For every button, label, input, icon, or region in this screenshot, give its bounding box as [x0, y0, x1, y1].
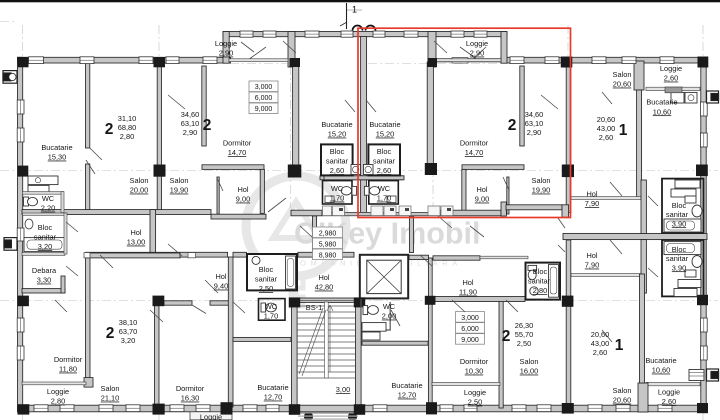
svg-text:15,20: 15,20 [376, 130, 395, 139]
svg-text:68,80: 68,80 [118, 123, 137, 132]
svg-text:Bucatarie: Bucatarie [369, 120, 400, 129]
svg-text:38,10: 38,10 [119, 318, 138, 327]
svg-text:2,980: 2,980 [319, 230, 337, 237]
svg-text:Loggie: Loggie [200, 412, 222, 420]
svg-text:11,90: 11,90 [459, 288, 477, 297]
svg-text:Loggie: Loggie [464, 388, 486, 397]
svg-text:34,60: 34,60 [525, 110, 544, 119]
svg-text:42,80: 42,80 [315, 283, 334, 292]
svg-text:5,980: 5,980 [319, 241, 337, 248]
svg-text:Dormitor: Dormitor [460, 139, 489, 148]
svg-text:Bucatarie: Bucatarie [41, 143, 72, 152]
svg-text:sanitar: sanitar [255, 275, 278, 284]
svg-text:sanitar: sanitar [34, 233, 57, 242]
svg-text:Hol: Hol [215, 272, 226, 281]
svg-text:sanitar: sanitar [666, 254, 689, 263]
svg-text:2,60: 2,60 [599, 133, 613, 142]
svg-text:2,80: 2,80 [120, 132, 134, 141]
svg-text:20,60: 20,60 [613, 80, 632, 89]
svg-text:Salon: Salon [532, 176, 551, 185]
svg-text:3,20: 3,20 [38, 242, 52, 251]
svg-text:6,000: 6,000 [255, 95, 273, 102]
svg-text:Dormitor: Dormitor [460, 357, 489, 366]
svg-text:3,30: 3,30 [37, 276, 51, 285]
svg-text:sanitar: sanitar [528, 277, 551, 286]
svg-text:Hol: Hol [586, 251, 597, 260]
svg-text:Bloc: Bloc [672, 201, 687, 210]
svg-text:Dormitor: Dormitor [176, 384, 205, 393]
svg-text:2,90: 2,90 [527, 128, 541, 137]
svg-text:7,90: 7,90 [585, 199, 599, 208]
svg-text:Bloc: Bloc [38, 223, 53, 232]
svg-text:Salon: Salon [613, 386, 632, 395]
svg-text:10,60: 10,60 [653, 107, 672, 116]
svg-text:Hol: Hol [586, 190, 597, 199]
svg-text:Hol: Hol [476, 185, 487, 194]
svg-text:2,20: 2,20 [41, 204, 55, 213]
svg-text:Hol: Hol [318, 273, 329, 282]
svg-text:Loggie: Loggie [660, 64, 682, 73]
svg-text:15,30: 15,30 [48, 153, 67, 162]
svg-text:13,00: 13,00 [127, 238, 146, 247]
svg-text:2,90: 2,90 [183, 128, 197, 137]
svg-text:Bloc: Bloc [330, 147, 345, 156]
svg-text:63,10: 63,10 [181, 119, 200, 128]
svg-text:14,70: 14,70 [465, 148, 484, 157]
svg-text:10,30: 10,30 [465, 367, 484, 376]
svg-text:2,50: 2,50 [259, 284, 273, 293]
svg-text:Bloc: Bloc [672, 245, 687, 254]
svg-text:63,10: 63,10 [525, 119, 544, 128]
svg-text:Dormitor: Dormitor [223, 139, 252, 148]
svg-text:15,20: 15,20 [328, 130, 347, 139]
svg-text:WC: WC [265, 302, 278, 311]
svg-text:2,50: 2,50 [468, 398, 482, 407]
svg-text:Hol: Hol [130, 228, 141, 237]
svg-text:26,30: 26,30 [515, 321, 534, 330]
svg-text:2,00: 2,00 [382, 312, 396, 321]
svg-text:WC: WC [42, 194, 55, 203]
svg-text:Loggie: Loggie [466, 39, 488, 48]
svg-text:2,90: 2,90 [470, 49, 484, 58]
svg-text:Bucatarie: Bucatarie [646, 98, 677, 107]
svg-text:Loggie: Loggie [47, 387, 69, 396]
svg-text:3,00: 3,00 [336, 385, 350, 394]
svg-text:3,20: 3,20 [121, 336, 135, 345]
svg-text:16,30: 16,30 [181, 394, 200, 403]
svg-text:Hol: Hol [237, 185, 248, 194]
svg-text:1,70: 1,70 [377, 194, 391, 203]
svg-text:6,000: 6,000 [461, 326, 479, 333]
svg-text:55,70: 55,70 [515, 330, 534, 339]
svg-text:Salon: Salon [101, 384, 120, 393]
svg-text:20,60: 20,60 [591, 330, 610, 339]
svg-text:Bucatarie: Bucatarie [257, 383, 288, 392]
svg-text:Bloc: Bloc [259, 265, 274, 274]
svg-text:Loggie: Loggie [215, 39, 237, 48]
svg-text:2,60: 2,60 [593, 348, 607, 357]
svg-text:3,000: 3,000 [255, 84, 273, 91]
svg-text:Bucatarie: Bucatarie [645, 356, 676, 365]
svg-text:19,90: 19,90 [170, 186, 189, 195]
svg-text:BS-1: BS-1 [306, 303, 322, 312]
svg-text:9,40: 9,40 [214, 282, 228, 291]
svg-text:10,60: 10,60 [652, 366, 671, 375]
svg-text:63,70: 63,70 [119, 327, 138, 336]
svg-text:1: 1 [615, 337, 624, 354]
svg-text:Bloc: Bloc [533, 267, 548, 276]
svg-text:43,00: 43,00 [597, 124, 616, 133]
svg-text:14,70: 14,70 [228, 148, 247, 157]
svg-text:Debara: Debara [32, 266, 57, 275]
svg-text:34,60: 34,60 [181, 110, 200, 119]
svg-text:3,000: 3,000 [461, 315, 479, 322]
svg-text:sanitar: sanitar [666, 210, 689, 219]
svg-text:Salon: Salon [170, 176, 189, 185]
svg-text:2,50: 2,50 [517, 339, 531, 348]
svg-text:20,00: 20,00 [130, 186, 149, 195]
svg-text:sanitar: sanitar [326, 157, 349, 166]
svg-text:9,00: 9,00 [475, 195, 489, 204]
svg-text:Bucatarie: Bucatarie [391, 381, 422, 390]
svg-text:3,90: 3,90 [672, 263, 686, 272]
svg-text:Hol: Hol [462, 278, 473, 287]
svg-text:43,00: 43,00 [591, 339, 610, 348]
svg-text:1: 1 [619, 122, 628, 139]
svg-text:Bucatarie: Bucatarie [321, 120, 352, 129]
svg-text:2,60: 2,60 [662, 397, 676, 406]
svg-text:2: 2 [105, 121, 114, 138]
svg-text:8,980: 8,980 [319, 252, 337, 259]
svg-text:12,70: 12,70 [264, 393, 283, 402]
svg-text:Salon: Salon [613, 70, 632, 79]
svg-text:Salon: Salon [130, 176, 149, 185]
svg-text:11,80: 11,80 [59, 365, 77, 374]
svg-text:20,60: 20,60 [613, 396, 632, 405]
svg-text:12,70: 12,70 [398, 391, 417, 400]
svg-text:20,60: 20,60 [597, 115, 616, 124]
svg-text:2,60: 2,60 [377, 166, 391, 175]
svg-text:Salon: Salon [520, 357, 539, 366]
svg-text:9,00: 9,00 [236, 195, 250, 204]
svg-text:2: 2 [502, 328, 511, 345]
svg-text:2: 2 [106, 325, 115, 342]
svg-text:Bloc: Bloc [377, 147, 392, 156]
svg-text:sanitar: sanitar [373, 157, 396, 166]
svg-text:31,10: 31,10 [118, 114, 137, 123]
svg-text:2,80: 2,80 [533, 286, 547, 295]
svg-text:Dormitor: Dormitor [54, 355, 83, 364]
svg-text:19,90: 19,90 [532, 186, 551, 195]
svg-text:9,000: 9,000 [255, 106, 273, 113]
svg-text:2,60: 2,60 [330, 166, 344, 175]
svg-text:WC: WC [383, 302, 396, 311]
svg-text:16,00: 16,00 [520, 367, 539, 376]
svg-text:1,70: 1,70 [330, 194, 344, 203]
svg-text:7,90: 7,90 [585, 261, 599, 270]
svg-text:WC: WC [331, 184, 344, 193]
svg-text:2,60: 2,60 [664, 74, 678, 83]
svg-text:3,90: 3,90 [672, 219, 686, 228]
svg-text:9,000: 9,000 [461, 337, 479, 344]
svg-text:2,90: 2,90 [219, 49, 233, 58]
svg-text:1,70: 1,70 [264, 312, 278, 321]
svg-text:21,10: 21,10 [101, 394, 120, 403]
svg-text:2: 2 [203, 117, 212, 134]
svg-text:1: 1 [352, 5, 357, 15]
svg-text:WC: WC [378, 184, 391, 193]
svg-text:2: 2 [508, 117, 517, 134]
svg-text:Loggie: Loggie [658, 388, 680, 397]
svg-text:2,80: 2,80 [51, 397, 65, 406]
